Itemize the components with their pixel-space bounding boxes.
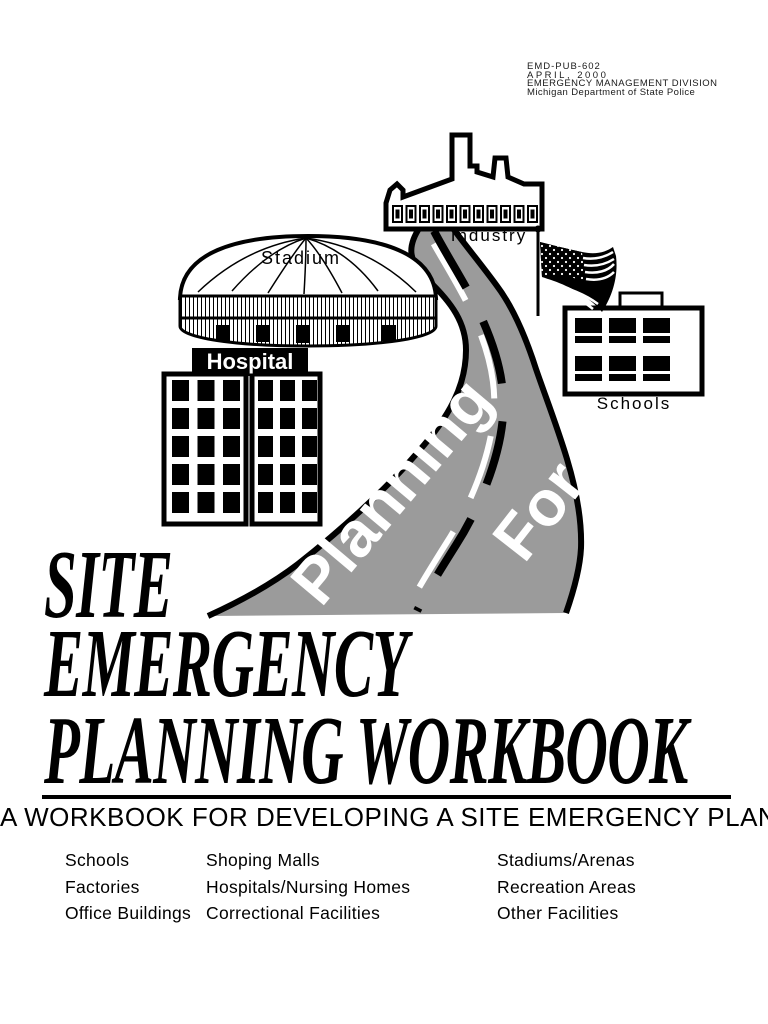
facility-item: Office Buildings xyxy=(65,900,191,927)
facility-item: Correctional Facilities xyxy=(206,900,410,927)
stadium-building: Stadium xyxy=(180,236,436,346)
facility-item: Shoping Malls xyxy=(206,847,410,874)
us-flag xyxy=(535,226,617,317)
facility-item: Recreation Areas xyxy=(497,874,636,901)
facility-item: Other Facilities xyxy=(497,900,636,927)
hospital-building: Hospital xyxy=(164,348,320,524)
hospital-right-windows xyxy=(258,380,318,514)
title-line-3: PLANNING WORKBOOK xyxy=(44,702,688,800)
hospital-left-windows xyxy=(172,380,240,514)
factory-window-row xyxy=(392,205,538,223)
schools-label: Schools xyxy=(597,394,671,413)
stadium-upper-band xyxy=(180,296,436,318)
subtitle: A WORKBOOK FOR DEVELOPING A SITE EMERGEN… xyxy=(0,802,768,833)
hospital-label: Hospital xyxy=(207,349,294,374)
schools-building: Schools xyxy=(565,293,702,413)
stadium-label: Stadium xyxy=(261,248,341,268)
facility-item: Factories xyxy=(65,874,191,901)
workbook-cover-page: EMD-PUB-602 APRIL, 2000 EMERGENCY MANAGE… xyxy=(0,0,768,1024)
facilities-column-3: Stadiums/Arenas Recreation Areas Other F… xyxy=(497,847,636,927)
facilities-column-2: Shoping Malls Hospitals/Nursing Homes Co… xyxy=(206,847,410,927)
facility-item: Hospitals/Nursing Homes xyxy=(206,874,410,901)
facilities-column-1: Schools Factories Office Buildings xyxy=(65,847,191,927)
title-divider-rule xyxy=(42,795,731,799)
industry-label: Industry xyxy=(451,226,527,245)
flag-pole-finial xyxy=(535,226,542,233)
industry-building xyxy=(386,135,542,229)
facility-item: Schools xyxy=(65,847,191,874)
facility-item: Stadiums/Arenas xyxy=(497,847,636,874)
